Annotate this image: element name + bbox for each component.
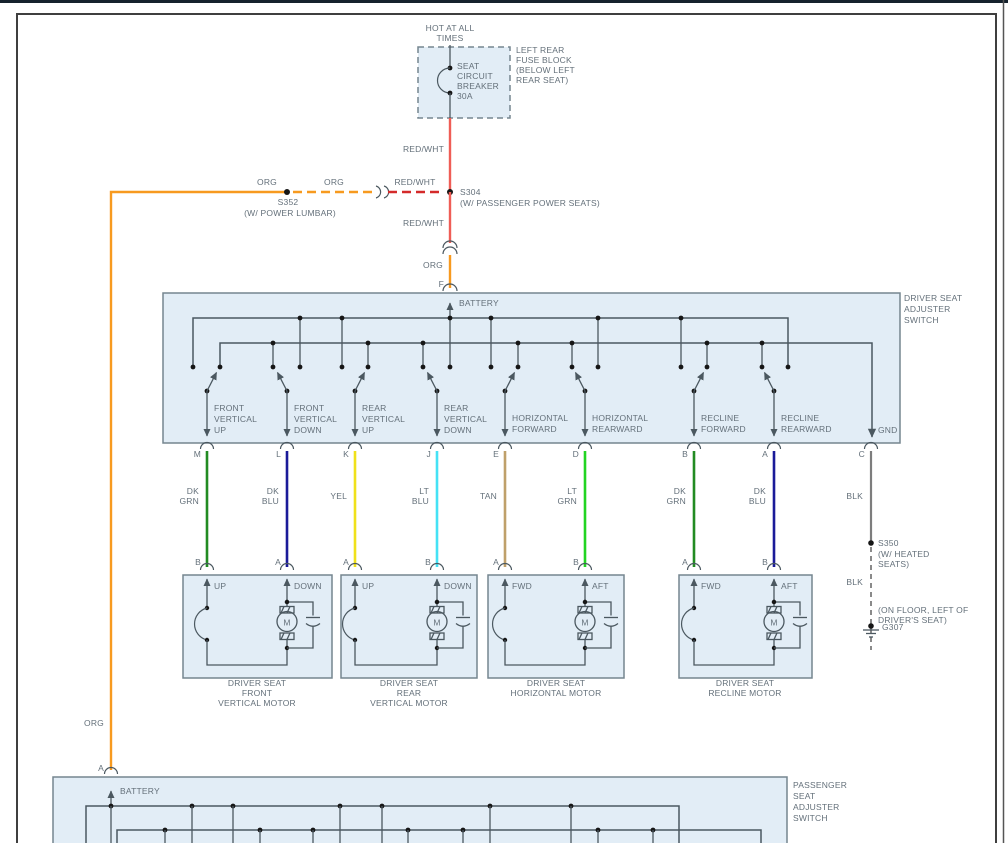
pin-label: A <box>275 557 281 567</box>
wire-color-label: BLU <box>412 496 429 506</box>
driver-switch-box: DRIVER SEAT ADJUSTER SWITCH BATTERY GND <box>163 293 962 443</box>
breaker-name: CIRCUIT <box>457 71 493 81</box>
motor-letter: M <box>433 618 440 628</box>
hot-at-all-times-label-2: TIMES <box>437 33 464 43</box>
passenger-switch: ORG A PASSENGER SEAT ADJUSTER SWITCH BAT… <box>53 718 847 843</box>
pin-a-label: A <box>98 763 104 773</box>
fuse-block-location: REAR SEAT) <box>516 75 568 85</box>
wire-color-label: DK <box>674 486 686 496</box>
pin-label: A <box>762 449 768 459</box>
motor-caption: DRIVER SEAT <box>527 678 585 688</box>
wire-label-org-dashed: ORG <box>324 177 344 187</box>
wire-color-label: TAN <box>480 491 497 501</box>
motor-rear-vertical: UP DOWN M DRIVER SEAT REAR VERTICAL MOTO… <box>341 575 477 708</box>
driver-switch-title: DRIVER SEAT <box>904 293 962 303</box>
motor-direction-label: DOWN <box>444 581 472 591</box>
wire-label-org: ORG <box>423 260 443 270</box>
splice-s350-note: (W/ HEATED <box>878 549 929 559</box>
wire-label-red-wht: RED/WHT <box>403 144 444 154</box>
top-strip <box>0 0 1008 3</box>
fuse-block-location: (BELOW LEFT <box>516 65 575 75</box>
wire-color-label: BLU <box>749 496 766 506</box>
breaker-name: BREAKER <box>457 81 499 91</box>
switch-label: VERTICAL <box>362 414 405 424</box>
pin-label: B <box>682 449 688 459</box>
wire-color-label: DK <box>187 486 199 496</box>
hot-at-all-times-label: HOT AT ALL <box>426 23 475 33</box>
pin-f-label: F <box>439 279 444 289</box>
motor-caption: VERTICAL MOTOR <box>218 698 296 708</box>
motor-caption: FRONT <box>242 688 272 698</box>
pin-label: B <box>762 557 768 567</box>
switch-label: UP <box>362 425 374 435</box>
wiring-diagram: HOT AT ALL TIMES SEAT CIRCUIT BREAKER 30… <box>0 0 1008 843</box>
motor-caption: DRIVER SEAT <box>380 678 438 688</box>
motor-recline: FWD AFT M DRIVER SEAT RECLINE MOTOR <box>679 575 812 698</box>
switch-label: UP <box>214 425 226 435</box>
driver-switch-title: ADJUSTER <box>904 304 950 314</box>
motor-caption: VERTICAL MOTOR <box>370 698 448 708</box>
motor-front-vertical: UP DOWN M DRIVER SEAT FRONT VERTICAL MOT… <box>183 575 332 708</box>
splice-s352 <box>284 189 290 195</box>
pin-label: B <box>425 557 431 567</box>
switch-label: FRONT <box>294 403 324 413</box>
splice-s350-id: S350 <box>878 538 899 548</box>
splice-s304-note: (W/ PASSENGER POWER SEATS) <box>460 198 600 208</box>
passenger-switch-title: PASSENGER <box>793 780 847 790</box>
wire-color-label: BLK <box>846 491 863 501</box>
switch-label: DOWN <box>294 425 322 435</box>
wire-color-label: YEL <box>330 491 347 501</box>
motor-pins: B A A B A B A B <box>195 557 780 570</box>
ground-location: (ON FLOOR, LEFT OF <box>878 605 968 615</box>
motor-horizontal: FWD AFT M DRIVER SEAT HORIZONTAL MOTOR <box>488 575 624 698</box>
wire-color-label: GRN <box>180 496 200 506</box>
motor-letter: M <box>770 618 777 628</box>
pin-label: E <box>493 449 499 459</box>
switch-label: REARWARD <box>781 424 832 434</box>
motor-direction-label: AFT <box>781 581 798 591</box>
wire-label-red-wht-dashed: RED/WHT <box>394 177 435 187</box>
motor-letter: M <box>283 618 290 628</box>
switch-label: FRONT <box>214 403 244 413</box>
wire-label-org: ORG <box>257 177 277 187</box>
switch-label: DOWN <box>444 425 472 435</box>
gnd-label: GND <box>878 425 898 435</box>
wire-color-label: GRN <box>667 496 687 506</box>
pin-label: B <box>195 557 201 567</box>
motor-wires: DK GRN DK BLU YEL LT BLU TAN LT GRN DK G… <box>180 451 872 567</box>
splice-s352-note: (W/ POWER LUMBAR) <box>244 208 336 218</box>
power-feed: HOT AT ALL TIMES SEAT CIRCUIT BREAKER 30… <box>403 23 575 192</box>
fuse-block-location: LEFT REAR <box>516 45 564 55</box>
motor-direction-label: AFT <box>592 581 609 591</box>
switch-label: RECLINE <box>781 413 819 423</box>
pin-label: A <box>682 557 688 567</box>
pin-label: A <box>493 557 499 567</box>
ground-path: S350 (W/ HEATED SEATS) BLK (ON FLOOR, LE… <box>846 538 968 650</box>
switch-label: FORWARD <box>701 424 746 434</box>
wire-color-label: DK <box>754 486 766 496</box>
motor-direction-label: FWD <box>512 581 532 591</box>
breaker-rating: 30A <box>457 91 473 101</box>
battery-input-label: BATTERY <box>120 786 160 796</box>
wire-label-red-wht: RED/WHT <box>403 218 444 228</box>
passenger-switch-box <box>53 777 787 843</box>
motor-caption: RECLINE MOTOR <box>708 688 781 698</box>
breaker-name: SEAT <box>457 61 479 71</box>
switch-label: VERTICAL <box>214 414 257 424</box>
pin-label: B <box>573 557 579 567</box>
passenger-switch-title: ADJUSTER <box>793 802 839 812</box>
splice-s350-note: SEATS) <box>878 559 909 569</box>
motor-caption: DRIVER SEAT <box>716 678 774 688</box>
motor-direction-label: DOWN <box>294 581 322 591</box>
switch-label: REAR <box>444 403 468 413</box>
splice-s350 <box>868 540 874 546</box>
wire-color-label: GRN <box>558 496 578 506</box>
motor-caption: DRIVER SEAT <box>228 678 286 688</box>
wire-label-blk: BLK <box>846 577 863 587</box>
switch-label: FORWARD <box>512 424 557 434</box>
wire-color-label: LT <box>567 486 577 496</box>
pin-label: C <box>859 449 865 459</box>
passenger-switch-title: SEAT <box>793 791 815 801</box>
switch-label: VERTICAL <box>444 414 487 424</box>
pin-label: D <box>573 449 579 459</box>
switch-label: REAR <box>362 403 386 413</box>
passenger-switch-title: SWITCH <box>793 813 828 823</box>
wire-color-label: DK <box>267 486 279 496</box>
driver-switch-title: SWITCH <box>904 315 939 325</box>
splice-s304-id: S304 <box>460 187 481 197</box>
pin-label: L <box>276 449 281 459</box>
motor-caption: HORIZONTAL MOTOR <box>511 688 602 698</box>
motor-direction-label: FWD <box>701 581 721 591</box>
switch-label: VERTICAL <box>294 414 337 424</box>
ground-g307-id: G307 <box>882 622 904 632</box>
wire-color-label: LT <box>419 486 429 496</box>
motor-direction-label: UP <box>214 581 226 591</box>
pin-label: K <box>343 449 349 459</box>
motor-direction-label: UP <box>362 581 374 591</box>
motor-letter: M <box>581 618 588 628</box>
switch-label: HORIZONTAL <box>592 413 648 423</box>
fuse-block-location: FUSE BLOCK <box>516 55 572 65</box>
splice-s352-id: S352 <box>278 197 299 207</box>
switch-label: REARWARD <box>592 424 643 434</box>
wire-label-org: ORG <box>84 718 104 728</box>
wire-color-label: BLU <box>262 496 279 506</box>
switch-label: HORIZONTAL <box>512 413 568 423</box>
motor-caption: REAR <box>397 688 421 698</box>
ground-symbol-g307 <box>863 623 879 637</box>
switch-label: RECLINE <box>701 413 739 423</box>
pin-label: M <box>194 449 201 459</box>
pin-label: A <box>343 557 349 567</box>
pin-label: J <box>427 449 431 459</box>
battery-input-label: BATTERY <box>459 298 499 308</box>
inline-connector <box>376 186 389 198</box>
